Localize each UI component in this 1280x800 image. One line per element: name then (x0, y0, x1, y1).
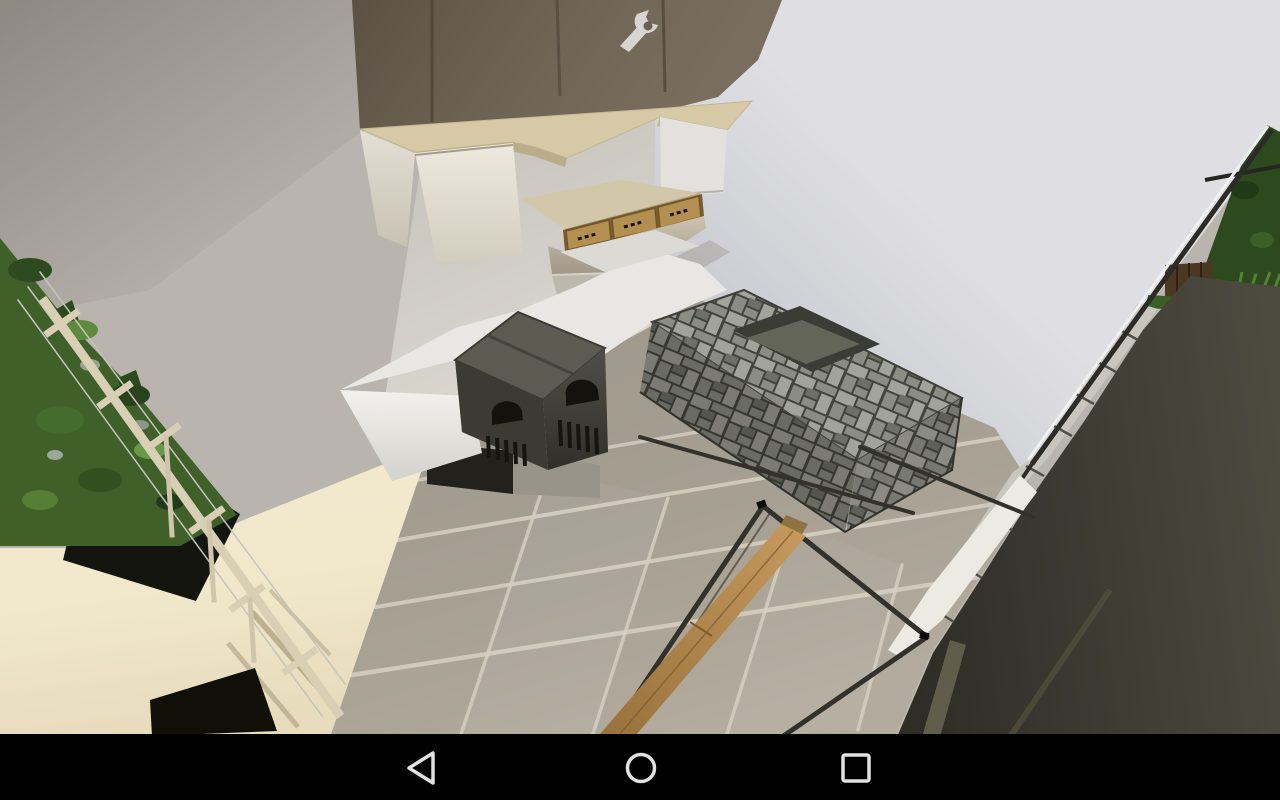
cabinet-right-box (660, 117, 727, 197)
minecraft-scene (0, 0, 1280, 800)
screenshot-stage (0, 0, 1280, 800)
navbar-background (0, 734, 1280, 800)
android-navigation-bar (0, 734, 1280, 800)
